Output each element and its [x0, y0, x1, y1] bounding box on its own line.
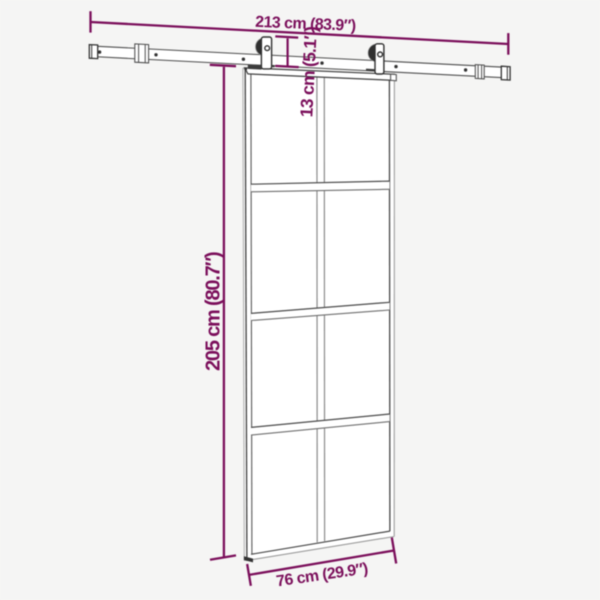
- svg-text:205 cm (80.7″): 205 cm (80.7″): [203, 252, 225, 371]
